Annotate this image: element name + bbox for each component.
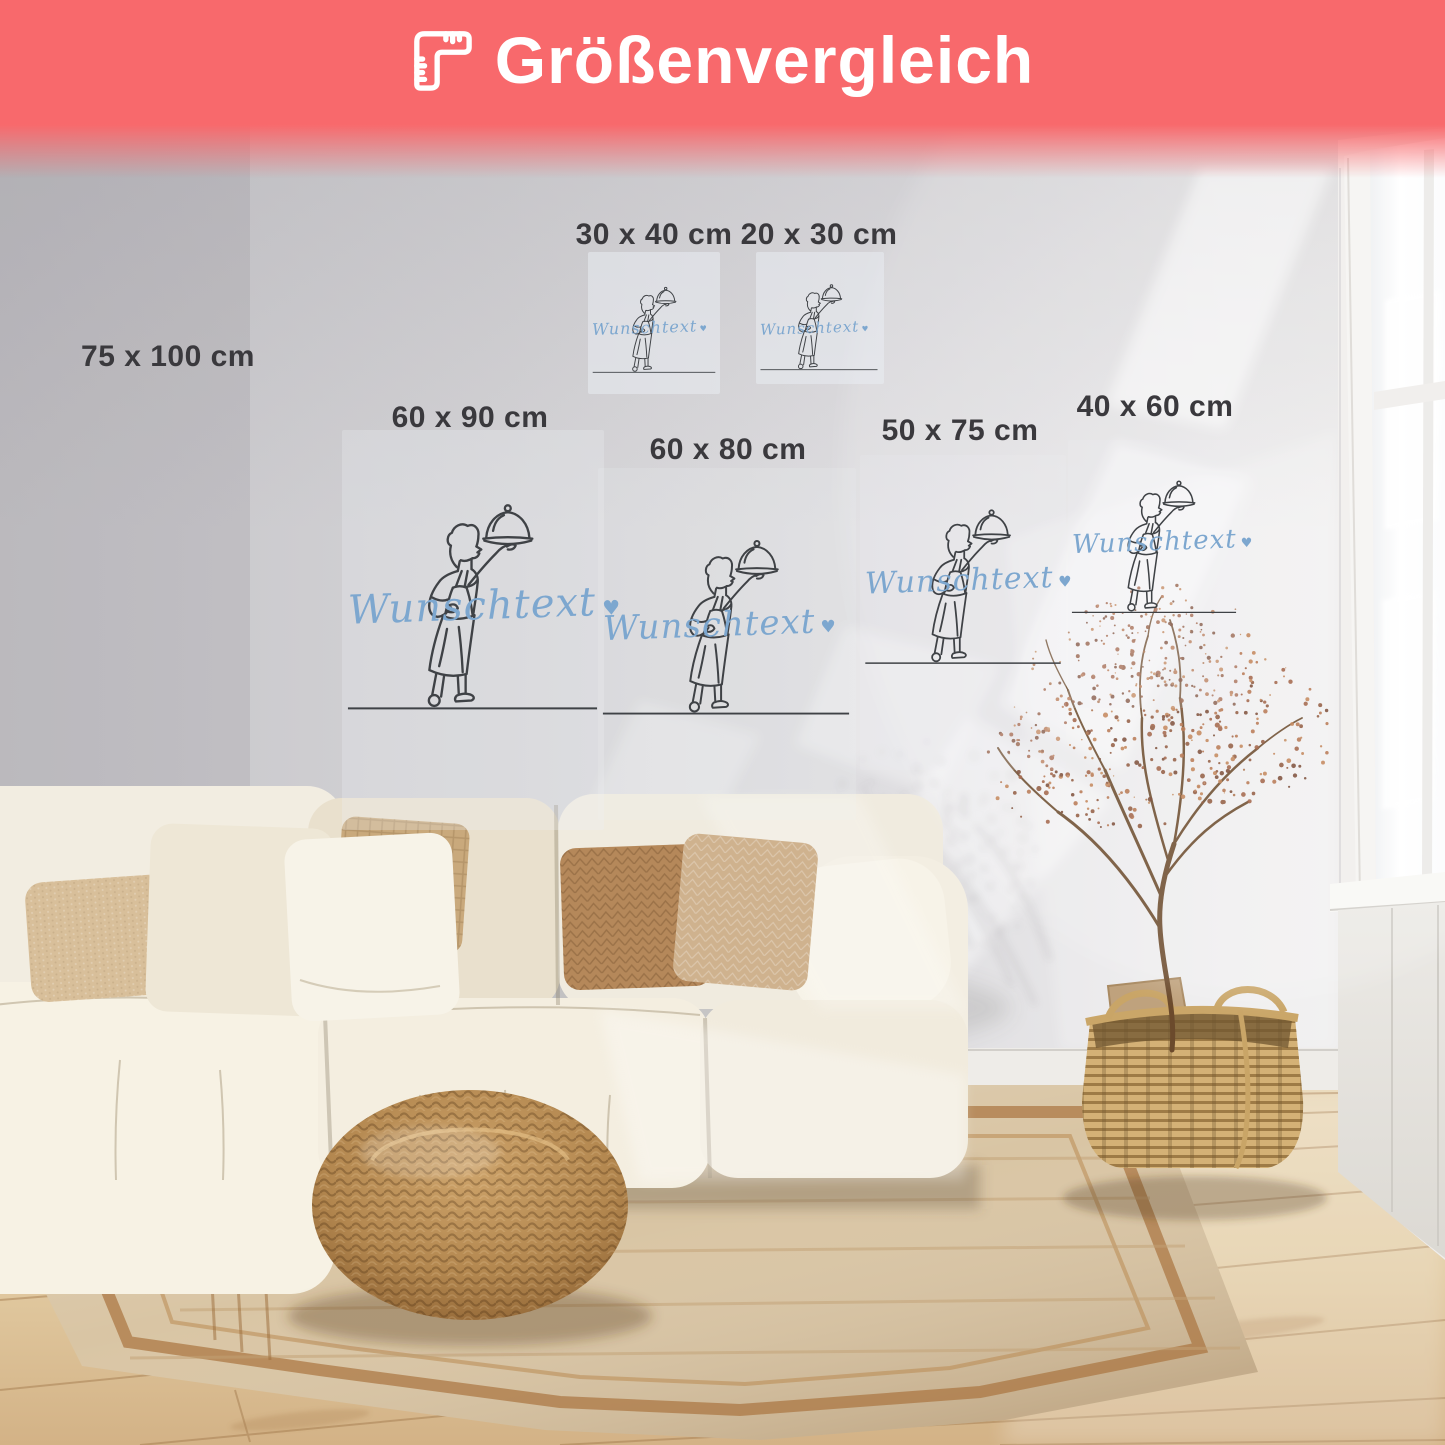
heart-icon: ♥ xyxy=(1240,536,1253,551)
poster-60x90: Wunschtext♥ xyxy=(345,500,600,726)
ruler-icon xyxy=(411,28,473,92)
size-label-60x90: 60 x 90 cm xyxy=(392,401,549,435)
wunschtext-label: Wunschtext♥ xyxy=(592,316,708,339)
poster-50x75: Wunschtext♥ xyxy=(863,500,1063,677)
wunschtext-label: Wunschtext♥ xyxy=(347,577,622,634)
size-label-40x60: 40 x 60 cm xyxy=(1077,390,1234,424)
wunschtext-text: Wunschtext xyxy=(602,602,816,649)
wunschtext-label: Wunschtext♥ xyxy=(1071,524,1253,561)
size-label-50x75: 50 x 75 cm xyxy=(882,414,1039,448)
sofa-chaise-seat xyxy=(0,982,335,1294)
poster-30x40: Wunschtext♥ xyxy=(591,270,717,381)
size-label-20x30: 20 x 30 cm xyxy=(741,218,898,252)
wunschtext-label: Wunschtext♥ xyxy=(760,317,870,339)
pillow-white xyxy=(283,832,460,1023)
size-label-30x40: 30 x 40 cm xyxy=(576,218,733,252)
heart-icon: ♥ xyxy=(820,617,837,638)
product-size-comparison-image: 75 x 100 cm 30 x 40 cm 20 x 30 cm 60 x 9… xyxy=(0,0,1445,1445)
poster-40x60: Wunschtext♥ xyxy=(1070,475,1238,624)
banner-title: Größenvergleich xyxy=(495,22,1035,98)
size-comparison-banner: Größenvergleich xyxy=(0,0,1445,178)
heart-icon: ♥ xyxy=(700,324,708,333)
wunschtext-label: Wunschtext♥ xyxy=(864,559,1073,602)
wunschtext-text: Wunschtext xyxy=(347,579,597,634)
wunschtext-text: Wunschtext xyxy=(1071,524,1237,560)
wunschtext-text: Wunschtext xyxy=(592,316,698,339)
size-label-75x100: 75 x 100 cm xyxy=(81,340,255,374)
wunschtext-text: Wunschtext xyxy=(760,317,860,338)
poster-60x80: Wunschtext♥ xyxy=(600,508,852,731)
poster-20x30: Wunschtext♥ xyxy=(759,272,879,378)
size-label-60x80: 60 x 80 cm xyxy=(650,433,807,467)
heart-icon: ♥ xyxy=(862,324,870,333)
wunschtext-label: Wunschtext♥ xyxy=(602,601,837,650)
wunschtext-text: Wunschtext xyxy=(864,560,1054,602)
